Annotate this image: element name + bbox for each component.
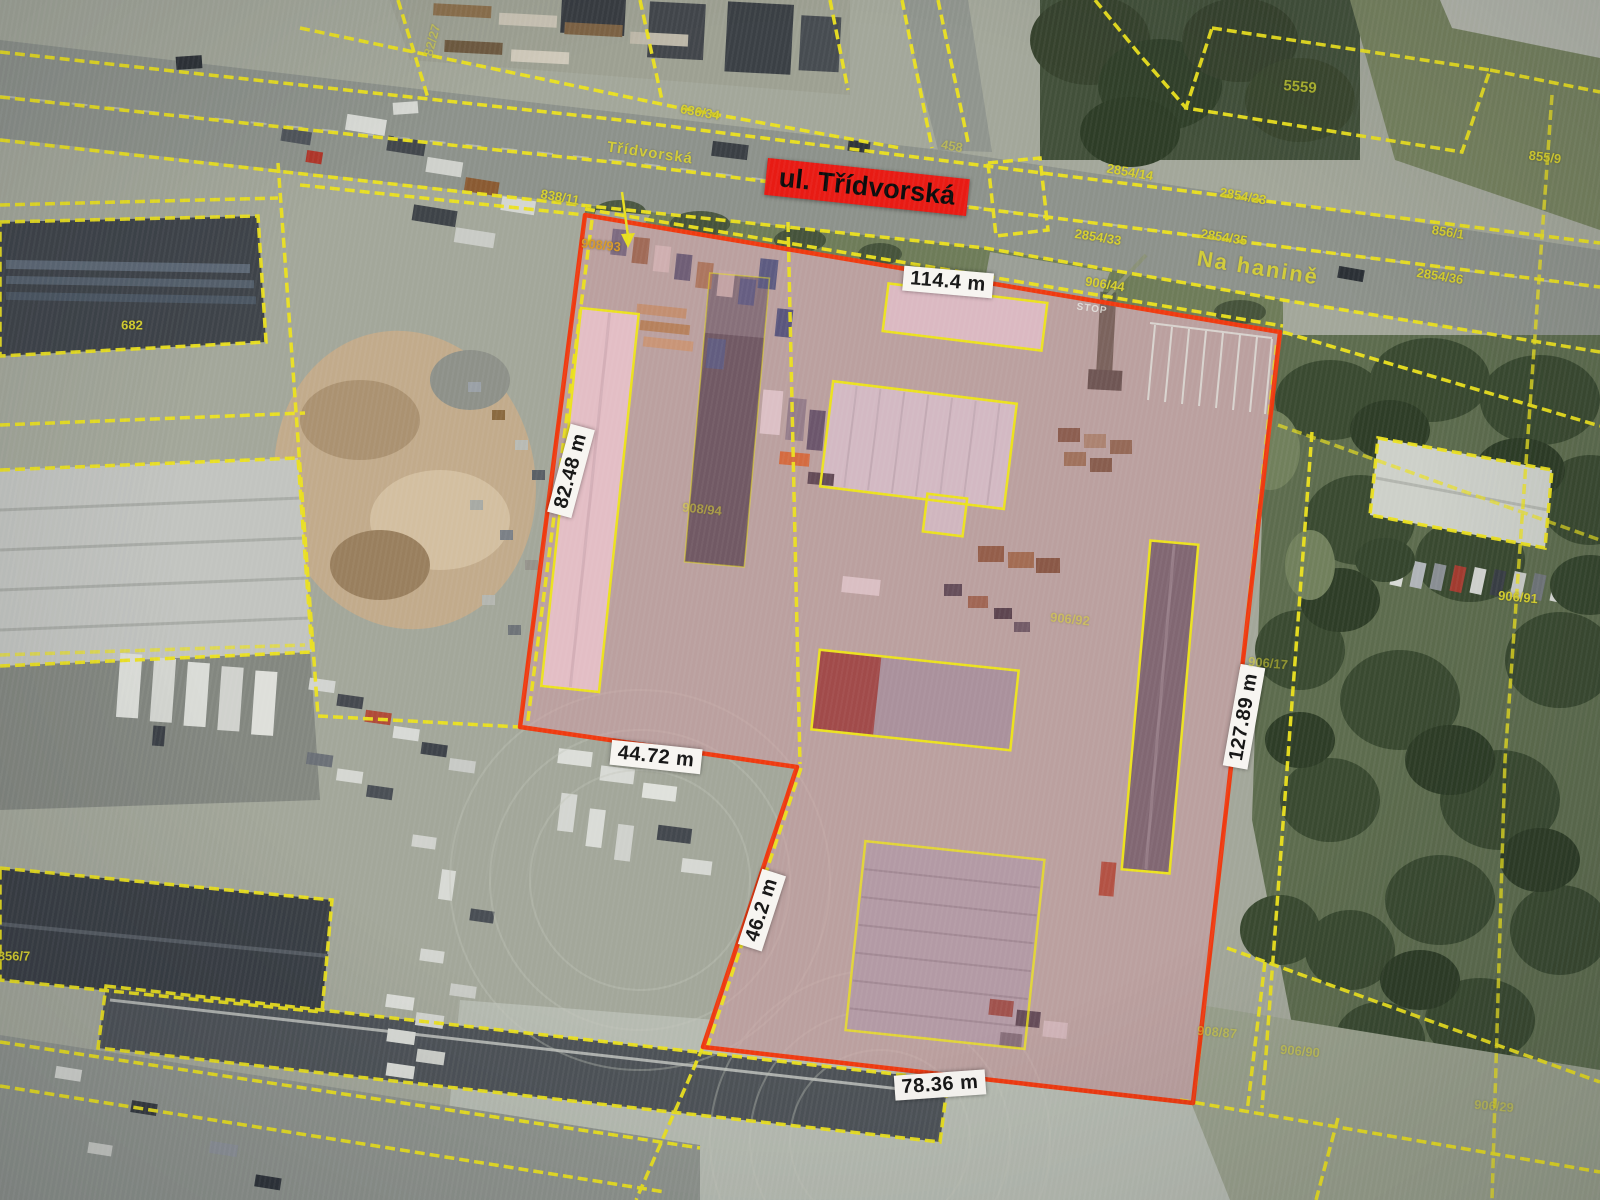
parcel-label: 5559: [1283, 77, 1318, 97]
parcel-label: 856/7: [0, 949, 30, 964]
parcel-label: 682: [121, 318, 143, 333]
aerial-map-viewport[interactable]: ul. Třídvorská Třídvorská Na hanině 114.…: [0, 0, 1600, 1200]
